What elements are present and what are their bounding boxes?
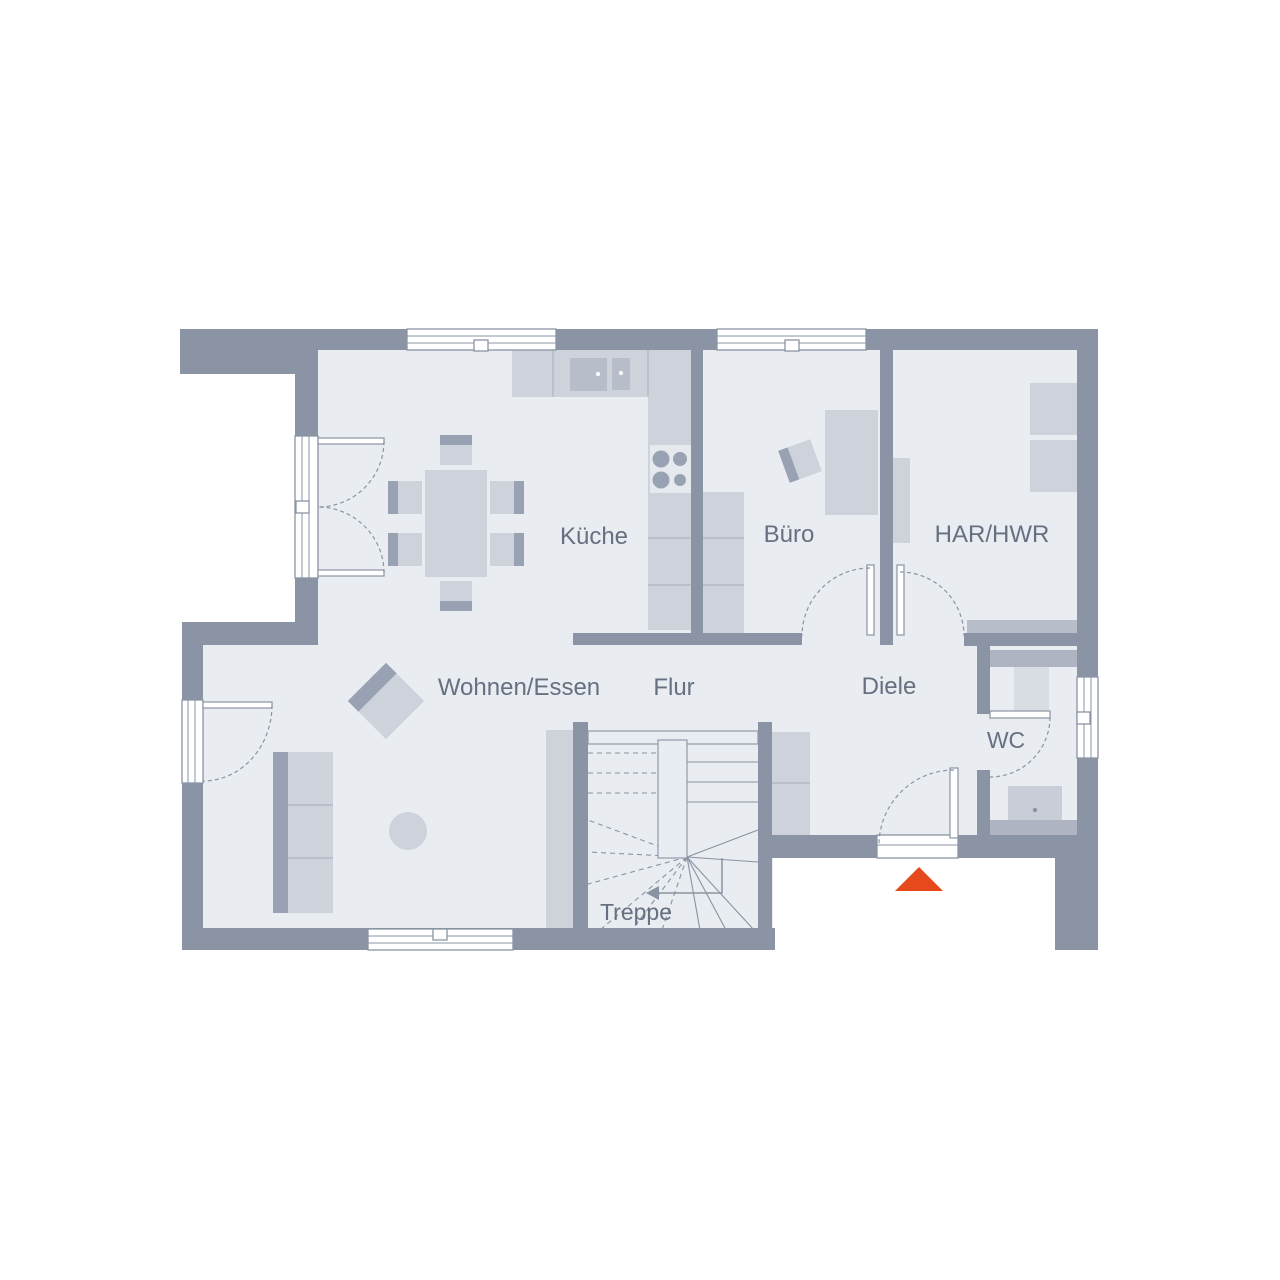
dining-chair (440, 435, 472, 465)
window-living (368, 929, 513, 950)
window-handle-icon (474, 340, 488, 351)
coffee-table (389, 812, 427, 850)
utility-counter (967, 620, 1077, 633)
wall-segment-left-lower (182, 645, 203, 950)
stair-void (658, 740, 687, 858)
room-label-diele: Diele (862, 673, 917, 700)
dining-chair (490, 533, 524, 566)
wall-segment-kitchen-office (691, 350, 703, 645)
dining-chair (388, 481, 422, 514)
kitchen-sink (570, 358, 607, 391)
stove-burner (673, 452, 687, 466)
room-label-wc: WC (987, 727, 1025, 753)
wall-segment-southeast (1055, 858, 1098, 950)
window-handle-icon (1077, 712, 1090, 724)
dining-table (425, 470, 487, 577)
room-label-kueche: Küche (560, 523, 628, 550)
room-label-flur: Flur (653, 674, 694, 701)
room-label-treppe: Treppe (600, 899, 672, 925)
toilet (1014, 667, 1049, 712)
wall-segment-utility-south (964, 633, 1077, 646)
room-label-har-hwr: HAR/HWR (935, 521, 1050, 548)
wall-segment-stair-left (573, 722, 588, 930)
wall-segment-office-utility (880, 350, 893, 645)
wardrobe (772, 732, 810, 835)
kitchen-appliance-knob (619, 371, 623, 375)
floor-plan-page: Küche Büro HAR/HWR Wohnen/Essen Flur Die… (0, 0, 1280, 1280)
office-desk (825, 410, 878, 515)
wall-segment-right (1077, 329, 1098, 858)
door-leaf (897, 565, 904, 635)
dining-chair (440, 581, 472, 611)
wall-segment-left-jog (182, 622, 318, 645)
entrance-marker-icon (895, 867, 943, 891)
floor-plan-drawing: Küche Büro HAR/HWR Wohnen/Essen Flur Die… (0, 0, 1280, 1280)
kitchen-counter-side (648, 397, 691, 630)
window-handle-icon (433, 929, 447, 940)
stove-burner (674, 474, 686, 486)
door-leaf (318, 570, 384, 576)
utility-appliance (1030, 383, 1077, 435)
dining-chair (490, 481, 524, 514)
wc-sink (1008, 786, 1062, 822)
office-cabinet (703, 492, 744, 633)
window-kitchen (407, 329, 556, 351)
wall-segment-top-left-block (180, 329, 295, 374)
window-handle-icon (296, 501, 309, 513)
door-leaf (867, 565, 874, 635)
wc-counter (990, 650, 1077, 667)
door-leaf (950, 768, 958, 838)
wc-sink-drain (1033, 808, 1037, 812)
hall-closet (546, 730, 573, 928)
wall-segment-hall-north (573, 633, 802, 645)
utility-cabinet (893, 458, 910, 543)
sofa (273, 752, 333, 913)
wall-segment-wc-lower (977, 770, 990, 838)
wall-segment-top (180, 329, 1098, 350)
room-label-buero: Büro (764, 521, 815, 548)
window-handle-icon (785, 340, 799, 351)
stove-burner (653, 472, 670, 489)
window-office (717, 329, 866, 351)
door-leaf (203, 702, 272, 708)
stove-burner (653, 451, 670, 468)
window-wc (1077, 677, 1098, 758)
utility-appliance (1030, 440, 1077, 492)
wall-segment-wc-upper (977, 646, 990, 714)
kitchen-sink-drain (596, 372, 600, 376)
door-leaf (990, 711, 1050, 718)
dining-chair (388, 533, 422, 566)
room-label-wohnen-essen: Wohnen/Essen (438, 674, 600, 701)
door-leaf (318, 438, 384, 444)
